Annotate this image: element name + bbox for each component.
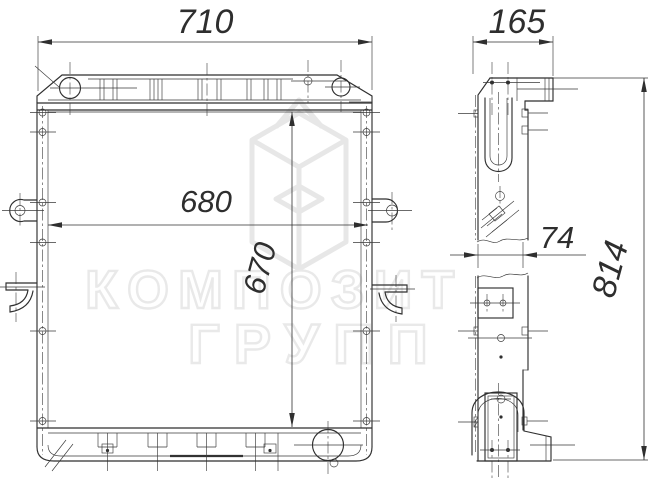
dimension-680: 680 (48, 184, 368, 228)
dimension-74: 74 (450, 220, 586, 268)
dimension-165: 165 (473, 3, 553, 76)
dimension-710: 710 (38, 3, 372, 91)
drawing-sheet: КОМПОЗИТ ГРУПП (0, 0, 650, 480)
technical-drawing: КОМПОЗИТ ГРУПП (0, 0, 650, 480)
mount-pin-left (2, 193, 44, 228)
bottom-arch (472, 383, 524, 478)
mount-hook-left (0, 272, 45, 322)
mount-pin-right (368, 192, 412, 230)
dim-overall-height: 814 (585, 237, 636, 302)
dim-core-width: 680 (180, 184, 232, 219)
lower-bracket-plate (470, 288, 520, 318)
edge-tabs (458, 109, 548, 427)
side-view (458, 62, 578, 478)
drain-cock (330, 459, 338, 467)
watermark-text-line2: ГРУПП (188, 312, 442, 375)
outlet-pipe (524, 431, 575, 461)
dim-core-thickness: 74 (540, 220, 574, 255)
section-detail (481, 186, 519, 237)
inlet-pipe (483, 62, 578, 118)
dim-overall-width: 710 (177, 3, 234, 41)
dim-depth: 165 (489, 3, 546, 41)
dimension-814: 814 (553, 78, 648, 460)
